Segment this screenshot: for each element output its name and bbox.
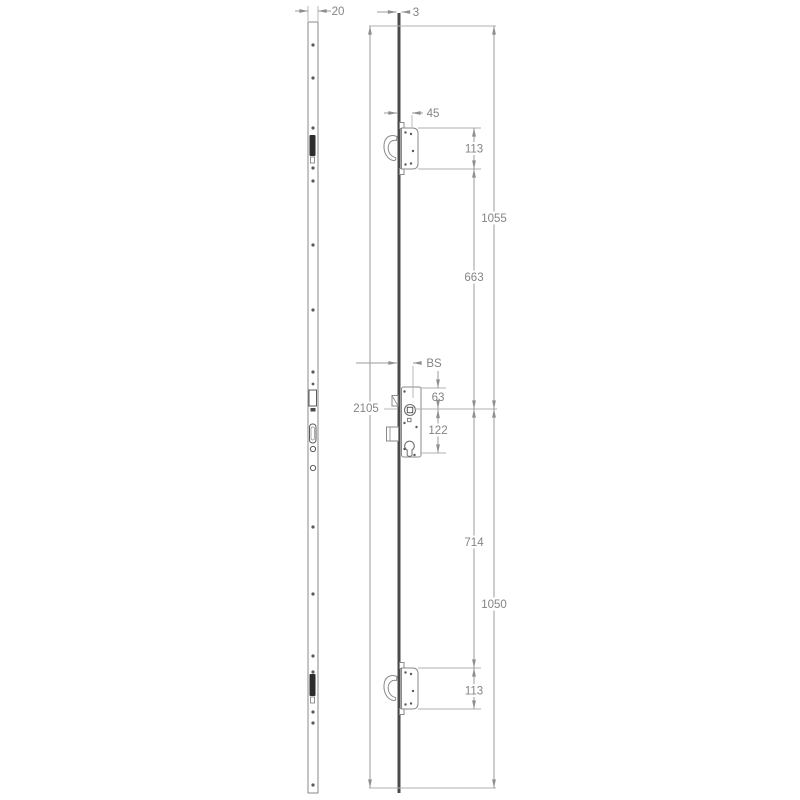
multipoint-lock-drawing: 20 3 45 — [0, 0, 800, 800]
faceplate-top-hook-slot — [310, 135, 316, 163]
dim-label-centre-to-bottom-case: 714 — [464, 537, 484, 549]
dim-faceplate-width: 20 — [295, 6, 344, 21]
main-lock — [387, 387, 422, 457]
dim-label-top-end-to-centre: 1055 — [481, 213, 507, 225]
dim-label-centre-to-bottom-end: 1050 — [481, 599, 507, 611]
technical-drawing-page: 20 3 45 — [0, 0, 800, 800]
dim-label-channel-thickness: 3 — [413, 7, 419, 19]
dim-top-case-height: 113 — [461, 128, 487, 169]
dim-label-case-top-to-spindle: 63 — [432, 392, 445, 404]
dim-bottom-case-height: 113 — [461, 668, 487, 709]
bottom-hook-bolt — [384, 675, 397, 700]
dim-total-length: 2105 — [348, 26, 384, 788]
dim-label-top-backset: 45 — [427, 108, 440, 120]
dim-label-faceplate-width: 20 — [332, 6, 345, 18]
dim-top-end-to-centre: 1055 — [478, 26, 510, 409]
dim-top-case-to-centre: 663 — [461, 169, 487, 409]
dim-label-top-case-to-centre: 663 — [464, 272, 483, 284]
top-hook-case — [402, 128, 419, 169]
faceplate-strip — [308, 22, 318, 793]
top-hook-lock — [384, 123, 418, 175]
bottom-hook-lock — [384, 663, 418, 715]
top-hook-bolt — [384, 135, 397, 160]
dim-top-backset: 45 — [384, 108, 439, 127]
dim-label-top-case-height: 113 — [465, 144, 483, 156]
dim-centre-to-bottom-end: 1050 — [478, 409, 510, 788]
dim-label-total-length: 2105 — [353, 403, 379, 415]
dim-label-bottom-case-height: 113 — [465, 686, 483, 698]
dim-case-top-to-spindle: 63 — [432, 371, 445, 409]
faceplate-bottom-hook-slot — [310, 674, 316, 703]
dim-centre-to-bottom-case: 714 — [461, 409, 487, 668]
faceplate-deadbolt-opening — [310, 424, 317, 443]
dim-spindle-to-cylinder: 122 — [425, 410, 451, 454]
deadbolt — [387, 427, 399, 441]
dim-label-spindle-to-cylinder: 122 — [428, 425, 447, 437]
latch-bolt — [392, 396, 398, 407]
dim-label-backset: BS — [426, 358, 442, 370]
bottom-hook-case — [402, 668, 419, 709]
